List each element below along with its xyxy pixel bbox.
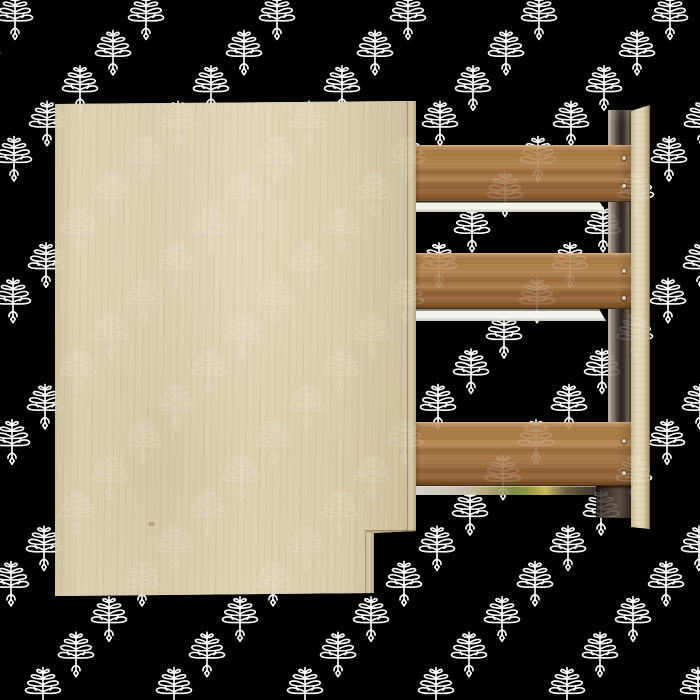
screw-icon: [622, 439, 626, 443]
front-panel: [55, 98, 420, 597]
panel-edge-right-lower: [365, 532, 374, 594]
screw-icon: [622, 296, 626, 300]
product-render-canvas: 3D product render of a partially assembl…: [0, 0, 700, 700]
screw-icon: [622, 184, 626, 188]
walnut-slat-top: [412, 145, 633, 202]
panel-notch-shadow: [365, 530, 417, 533]
walnut-slat-bottom: [412, 422, 633, 486]
drawer-slide-rail-bottom: [412, 485, 608, 495]
screw-icon: [622, 471, 626, 475]
wood-knot: [148, 521, 156, 526]
corner-bracket: [596, 486, 632, 518]
side-post: [631, 105, 650, 529]
walnut-slat-middle: [412, 253, 633, 309]
screw-icon: [622, 156, 626, 160]
screw-icon: [622, 269, 626, 273]
drawer-slide-rail-top: [412, 201, 606, 212]
drawer-slide-rail-middle: [412, 309, 606, 321]
panel-edge-right: [407, 100, 416, 532]
furniture-render: [0, 0, 700, 700]
